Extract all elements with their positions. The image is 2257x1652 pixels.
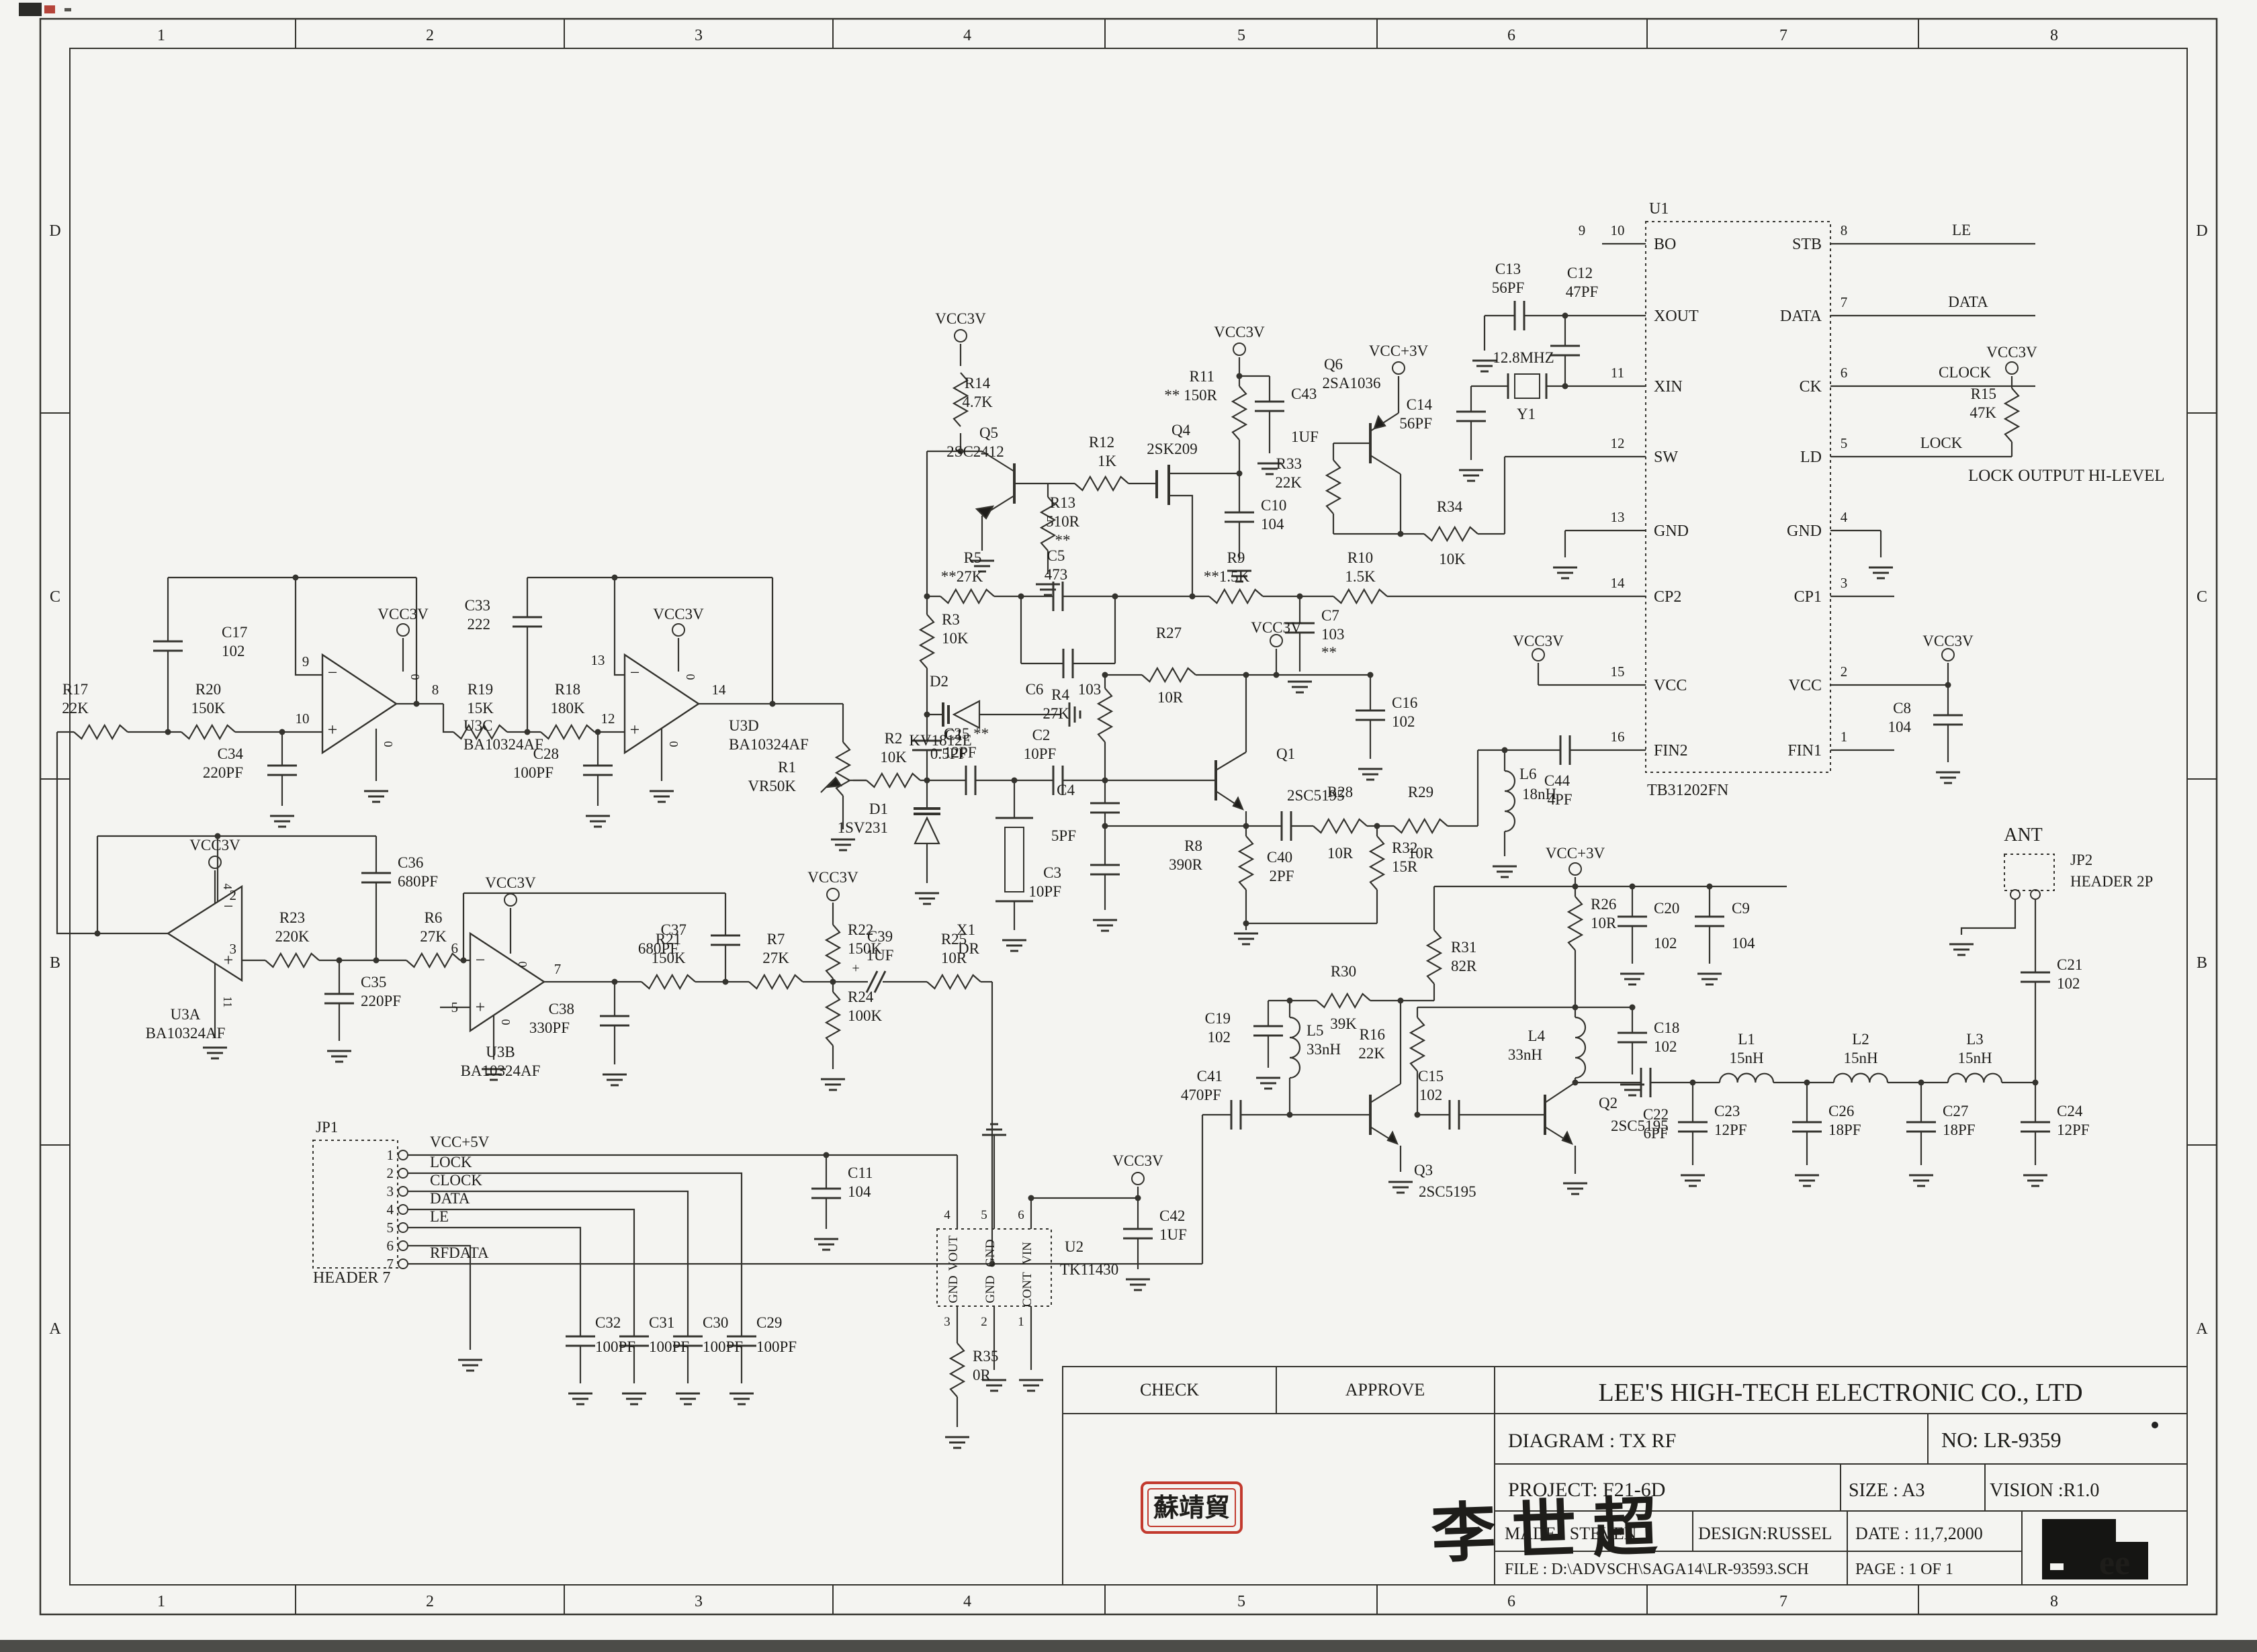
resistor <box>1333 590 1387 603</box>
artifact-dot <box>2152 1422 2158 1428</box>
label: 10K <box>1439 551 1466 567</box>
junction-dot <box>924 594 930 600</box>
label: 18PF <box>1943 1121 1976 1138</box>
grid-col-label: 8 <box>2050 27 2058 44</box>
label: C21 <box>2057 956 2082 973</box>
junction-dot <box>293 575 299 581</box>
device-poly <box>1562 1132 1572 1144</box>
label: LOCK <box>1920 434 1963 451</box>
label: C3 <box>1043 864 1061 881</box>
label: R6 <box>425 909 443 926</box>
sheet-frame: 1122334455667788DDCCBBAA <box>40 19 2217 1614</box>
label: SW <box>1654 449 1678 466</box>
resistor <box>1568 897 1582 950</box>
resistor <box>541 725 594 739</box>
label: 22K <box>1358 1045 1385 1062</box>
label: HEADER 7 <box>313 1269 390 1287</box>
label: C28 <box>533 745 559 762</box>
size-field: SIZE : A3 <box>1849 1480 1925 1501</box>
label: FIN1 <box>1787 742 1822 760</box>
label: U1 <box>1649 200 1669 218</box>
label: R12 <box>1089 434 1114 451</box>
junction-dot <box>1573 1005 1579 1011</box>
label: 15R <box>1392 858 1418 875</box>
junction-dot <box>1374 823 1380 829</box>
label: 104 <box>1732 935 1755 952</box>
label: 10PF <box>1028 883 1061 900</box>
label: R35 <box>973 1348 998 1365</box>
label: 10R <box>1327 845 1354 862</box>
power-node <box>1270 635 1282 647</box>
power-node <box>1532 649 1544 661</box>
label: 2SC2412 <box>946 443 1004 460</box>
device-poly <box>1374 416 1385 428</box>
junction-dot <box>1237 373 1243 379</box>
label: C8 <box>1893 700 1911 717</box>
label: VR50K <box>748 778 796 794</box>
label: 47PF <box>1566 283 1599 300</box>
label: VCC3V <box>1986 344 2037 361</box>
label: 15 <box>1611 663 1625 680</box>
label: C5 <box>1047 547 1065 564</box>
label: 5 <box>387 1220 394 1236</box>
junction-dot <box>1502 747 1508 753</box>
label: 7 <box>387 1256 394 1272</box>
resistor <box>1424 527 1478 541</box>
label: 102 <box>1654 935 1677 952</box>
label: 12 <box>1611 435 1625 451</box>
label: GND <box>1787 522 1822 540</box>
label: 0.5PF <box>930 745 967 762</box>
device-poly <box>1388 1132 1397 1144</box>
label: R10 <box>1347 549 1373 566</box>
lee-logo: ee <box>2042 1519 2148 1582</box>
grid-col-label: 7 <box>1779 1593 1787 1610</box>
resistor <box>836 742 850 796</box>
label: 6 <box>1018 1208 1024 1222</box>
junction-dot <box>414 701 420 707</box>
label: 3 <box>387 1183 394 1199</box>
wire <box>615 578 625 675</box>
label: 15nH <box>1843 1050 1877 1066</box>
label: LOCK OUTPUT HI-LEVEL <box>1968 467 2165 485</box>
label: 13 <box>1611 509 1625 525</box>
label: R1 <box>778 759 796 776</box>
junction-dot <box>1190 594 1196 600</box>
wire <box>1961 899 2015 935</box>
junction-dot <box>1102 672 1108 678</box>
label: C20 <box>1654 900 1679 917</box>
label: 7 <box>554 961 562 977</box>
junction-dot <box>1368 672 1374 678</box>
label: 12PF <box>1714 1121 1747 1138</box>
label: HEADER 2P <box>2070 873 2153 890</box>
label: 2PF <box>1269 868 1294 884</box>
label: 33nH <box>1307 1041 1341 1058</box>
label: 10PF <box>1024 745 1057 762</box>
junction-dot <box>279 729 285 735</box>
label: CP2 <box>1654 588 1681 606</box>
label: R11 <box>1190 368 1215 385</box>
wire <box>443 704 453 732</box>
resistor <box>1313 819 1367 833</box>
label: 1SV231 <box>838 819 888 836</box>
grid-col-label: 3 <box>695 27 703 44</box>
label: 390R <box>1169 856 1203 873</box>
stamp-text: 蘇靖貿 <box>1153 1494 1230 1522</box>
label: R21 <box>656 931 681 948</box>
check-stamp: 蘇靖貿 <box>1142 1483 1241 1532</box>
resistor <box>940 590 994 603</box>
label: VOUT <box>946 1235 961 1271</box>
label: C38 <box>549 1001 574 1017</box>
connector-pin <box>398 1168 408 1178</box>
connector-pin <box>398 1241 408 1250</box>
label: 11 <box>221 996 234 1007</box>
label: 102 <box>222 643 245 659</box>
label: VCC3V <box>485 874 536 891</box>
wire <box>1169 496 1192 596</box>
label: Q1 <box>1276 745 1295 762</box>
grid-col-label: 4 <box>963 27 971 44</box>
grid-col-label: 6 <box>1507 1593 1515 1610</box>
design-field: DESIGN:RUSSEL <box>1698 1524 1832 1543</box>
label: Q2 <box>1599 1095 1618 1111</box>
label: Q4 <box>1171 422 1191 439</box>
label: 18PF <box>1828 1121 1861 1138</box>
label: VCC3V <box>653 606 704 623</box>
date-field: DATE : 11,7,2000 <box>1855 1524 1983 1543</box>
label: C29 <box>756 1314 782 1331</box>
label: R32 <box>1392 839 1417 856</box>
label: R24 <box>848 989 874 1005</box>
label: C39 <box>867 928 893 945</box>
label: C11 <box>848 1164 873 1181</box>
label: 2 <box>1841 663 1848 680</box>
junction-dot <box>1102 778 1108 784</box>
label: 220PF <box>361 993 401 1009</box>
power-node <box>209 856 221 868</box>
label: 8 <box>1841 222 1848 238</box>
resistor <box>826 925 840 978</box>
connector-pin <box>398 1150 408 1160</box>
grid-row-label: D <box>2196 222 2207 240</box>
label: Q6 <box>1324 356 1343 373</box>
label: C18 <box>1654 1019 1679 1036</box>
label: C42 <box>1159 1207 1185 1224</box>
label: R4 <box>1051 686 1069 703</box>
label: VCC3V <box>1112 1152 1163 1169</box>
label: 330PF <box>529 1019 570 1036</box>
power-node <box>1569 863 1581 875</box>
label: 7 <box>1841 294 1848 310</box>
label: 9 <box>1579 222 1586 238</box>
label: − <box>630 663 640 682</box>
label: 510R <box>1046 513 1080 530</box>
schematic-page: 1122334455667788DDCCBBAA +VCC3VR144.7KQ5… <box>0 0 2257 1652</box>
label: + <box>476 997 486 1017</box>
label: 0 <box>382 741 395 747</box>
junction-dot <box>1630 1005 1636 1011</box>
grid-col-label: 1 <box>157 1593 165 1610</box>
inner-border <box>70 48 2187 1585</box>
label: R18 <box>555 681 580 698</box>
label: 680PF <box>398 873 438 890</box>
label: C33 <box>465 597 490 614</box>
junction-dot <box>337 958 343 964</box>
page-field: PAGE : 1 OF 1 <box>1855 1561 1953 1578</box>
label: R26 <box>1591 896 1616 913</box>
grid-col-label: 7 <box>1779 27 1787 44</box>
label: L5 <box>1307 1022 1324 1039</box>
label: 150K <box>651 950 686 966</box>
y1-crystal-body <box>1515 374 1540 398</box>
label: 6 <box>451 940 459 956</box>
resistor <box>1142 668 1196 682</box>
label: 22K <box>62 700 89 717</box>
company-name: LEE'S HIGH-TECH ELECTRONIC CO., LTD <box>1598 1379 2082 1407</box>
label: R28 <box>1327 784 1353 800</box>
label: VCC+5V <box>430 1134 490 1150</box>
label: 13 <box>591 652 605 668</box>
resistor <box>1327 460 1340 514</box>
label: 12.8MHZ <box>1493 349 1554 366</box>
label: R15 <box>1971 385 1996 402</box>
wire <box>1370 455 1401 474</box>
junction-dot <box>1287 1112 1293 1118</box>
label: BA10324AF <box>463 736 543 753</box>
label: 15nH <box>1729 1050 1763 1066</box>
junction-dot <box>824 1152 830 1158</box>
approver-signature: 李 世 超 <box>1430 1491 1659 1571</box>
label: VCC3V <box>1922 633 1974 649</box>
label: 27K <box>762 950 789 966</box>
label: 5 <box>1841 435 1848 451</box>
wire <box>408 1246 470 1350</box>
label: TB31202FN <box>1647 782 1728 799</box>
resistor <box>1317 994 1370 1007</box>
junction-dot <box>595 729 601 735</box>
label: VCC3V <box>378 606 429 623</box>
grid-col-label: 8 <box>2050 1593 2058 1610</box>
label: LE <box>1952 222 1971 238</box>
polarity-plus: + <box>852 961 859 976</box>
label: C17 <box>222 624 247 641</box>
label: C44 <box>1544 772 1570 789</box>
label: R9 <box>1227 549 1245 566</box>
inductor <box>1505 771 1515 831</box>
label: 56PF <box>1399 415 1432 432</box>
label: R3 <box>942 611 960 628</box>
label: R29 <box>1408 784 1433 800</box>
label: CLOCK <box>1939 364 1991 381</box>
power-node <box>1132 1173 1144 1185</box>
label: C2 <box>1032 727 1051 743</box>
junction-dot <box>1237 471 1243 477</box>
grid-col-label: 1 <box>157 27 165 44</box>
inductor <box>1948 1074 2002 1083</box>
label: D1 <box>869 800 888 817</box>
junction-dot <box>1297 594 1303 600</box>
connector-pin <box>398 1259 408 1269</box>
junction-dot <box>1028 1195 1034 1201</box>
label: VCC3V <box>807 869 858 886</box>
label: 3 <box>944 1315 950 1329</box>
label: R5 <box>964 549 982 566</box>
label: 2 <box>387 1165 394 1181</box>
device-poly <box>954 701 979 728</box>
connector-pin <box>2010 890 2020 899</box>
label: BO <box>1654 236 1676 253</box>
power-node <box>1233 343 1245 355</box>
label: R27 <box>1156 625 1182 641</box>
label: 14 <box>712 682 727 698</box>
label: U3C <box>463 717 492 734</box>
label: 1UF <box>867 947 894 964</box>
label: C14 <box>1407 396 1433 413</box>
wires <box>57 244 2035 1427</box>
label: 103 <box>1321 626 1345 643</box>
label: C32 <box>595 1314 621 1331</box>
grid-row-label: A <box>49 1320 61 1338</box>
label: 8 <box>432 682 439 698</box>
label: 180K <box>550 700 585 717</box>
resistor <box>826 992 840 1046</box>
label: 100PF <box>513 764 554 781</box>
label: XOUT <box>1654 308 1699 325</box>
label: 5 <box>451 999 459 1015</box>
label: R33 <box>1276 455 1302 472</box>
grid-col-label: 5 <box>1237 1593 1245 1610</box>
label: 2SC5195 <box>1419 1183 1476 1200</box>
label: 2SA1036 <box>1323 375 1381 392</box>
junction-dot <box>1918 1080 1924 1086</box>
junction-dot <box>1243 672 1249 678</box>
label: LOCK <box>430 1154 472 1171</box>
label: BA10324AF <box>729 736 809 753</box>
power-node <box>2006 362 2018 374</box>
label: ** 150R <box>1164 387 1217 404</box>
junction-dot <box>723 979 729 985</box>
label: 6PF <box>1643 1125 1668 1142</box>
grid-row-label: D <box>49 222 60 240</box>
grid-col-label: 2 <box>426 1593 434 1610</box>
resistor <box>74 725 128 739</box>
label: 1.5K <box>1345 568 1376 585</box>
label: 100PF <box>703 1338 743 1355</box>
inductor <box>1290 1017 1300 1078</box>
label: 220PF <box>203 764 243 781</box>
label: C7 <box>1321 607 1339 624</box>
label: 10 <box>296 710 310 727</box>
label: VCC3V <box>189 837 240 854</box>
label: C43 <box>1291 385 1317 402</box>
label: C22 <box>1643 1106 1669 1123</box>
label: 1 <box>387 1147 394 1163</box>
label: 4.7K <box>962 394 993 410</box>
label: 56PF <box>1492 279 1525 296</box>
power-node <box>504 894 517 906</box>
label: 102 <box>1208 1029 1231 1046</box>
label: Q3 <box>1414 1162 1433 1179</box>
label: C16 <box>1392 694 1417 711</box>
power-node <box>955 330 967 342</box>
junction-dot <box>1018 594 1024 600</box>
grid-col-label: 2 <box>426 27 434 44</box>
label: 100K <box>848 1007 883 1024</box>
grid-col-label: 3 <box>695 1593 703 1610</box>
label: VCC+3V <box>1546 845 1605 862</box>
junction-dot <box>1135 1195 1141 1201</box>
label: 0 <box>516 962 529 968</box>
junction-dot <box>1012 778 1018 784</box>
power-node <box>1942 649 1954 661</box>
junction-dot <box>1243 921 1249 927</box>
label: R23 <box>279 909 305 926</box>
wire <box>1370 1084 1401 1103</box>
label: C30 <box>703 1314 728 1331</box>
label: 150K <box>191 700 226 717</box>
wire <box>57 732 168 933</box>
junction-dot <box>1707 884 1713 890</box>
label: VCC3V <box>1251 619 1302 636</box>
label: L6 <box>1519 766 1537 782</box>
label: U2 <box>1065 1238 1083 1255</box>
check-label: CHECK <box>1140 1380 1199 1399</box>
resistor <box>1427 930 1441 984</box>
label: L2 <box>1852 1031 1869 1048</box>
logo-text: ee <box>2099 1544 2130 1582</box>
label: C40 <box>1267 849 1292 866</box>
junction-dot <box>1804 1080 1810 1086</box>
label: C26 <box>1828 1103 1854 1119</box>
junction-dot <box>1243 823 1249 829</box>
label: 39K <box>1330 1015 1357 1032</box>
label: R7 <box>767 931 785 948</box>
inductor <box>1720 1074 1773 1083</box>
label: GND <box>946 1275 961 1303</box>
junction-dot <box>461 958 467 964</box>
label: C6 <box>1026 681 1044 698</box>
label: DATA <box>430 1190 470 1207</box>
label: R19 <box>468 681 493 698</box>
label: 6 <box>387 1238 394 1254</box>
device-poly <box>915 818 939 843</box>
connector-pin <box>398 1187 408 1196</box>
label: VCC <box>1654 677 1687 694</box>
label: 1 <box>1018 1315 1024 1329</box>
label: C9 <box>1732 900 1750 917</box>
schematic-canvas: 1122334455667788DDCCBBAA +VCC3VR144.7KQ5… <box>0 0 2257 1652</box>
power-node <box>397 624 409 636</box>
label: 10R <box>1591 915 1617 931</box>
label: ** <box>1321 644 1337 661</box>
label: 12PF <box>2057 1121 2090 1138</box>
junction-dot <box>95 931 101 937</box>
label: 473 <box>1045 566 1068 583</box>
label: VCC3V <box>1513 633 1564 649</box>
label: R31 <box>1451 939 1476 956</box>
label: 14 <box>1611 575 1626 591</box>
connector-pin <box>398 1223 408 1232</box>
label: 47K <box>1970 404 1996 421</box>
jp1-body <box>313 1140 398 1268</box>
label: 1K <box>1098 453 1117 469</box>
resistor <box>181 725 235 739</box>
label: C36 <box>398 854 423 871</box>
label: XIN <box>1654 378 1683 396</box>
label: + <box>630 720 640 739</box>
